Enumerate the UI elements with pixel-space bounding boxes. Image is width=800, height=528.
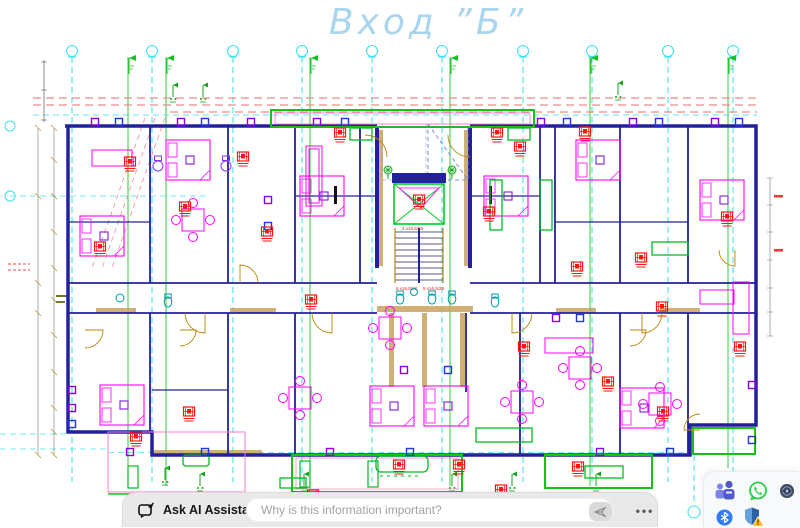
ai-assistant-bar[interactable]: Ask AI Assistant •••	[122, 492, 658, 527]
chat-assistant-icon	[138, 502, 155, 518]
elevator-north-wall	[392, 173, 446, 183]
teams-icon[interactable]	[714, 480, 736, 501]
send-button[interactable]	[589, 502, 612, 521]
more-options-button[interactable]: •••	[631, 493, 659, 528]
screen: 3 x16,5/28 5 x16,5/28 5 x16,5/28	[0, 0, 800, 527]
ai-question-input[interactable]	[246, 498, 613, 522]
floor-plan-drawing: 3 x16,5/28 5 x16,5/28 5 x16,5/28	[0, 0, 800, 527]
ai-assistant-left: Ask AI Assistant	[123, 502, 261, 518]
stair-label-1: 3 x16,5/28	[402, 226, 424, 231]
drawing-title: Вход ”Б”	[318, 2, 538, 48]
canopy-outline	[382, 124, 468, 180]
core: 3 x16,5/28 5 x16,5/28 5 x16,5/28	[384, 166, 456, 291]
send-icon	[594, 506, 607, 518]
bluetooth-icon[interactable]	[716, 509, 733, 526]
grid-lines	[0, 46, 757, 519]
round-app-icon[interactable]	[779, 483, 795, 499]
stair-label-3: 5 x16,5/28	[423, 286, 445, 291]
whatsapp-icon[interactable]	[747, 480, 769, 502]
staircase	[395, 228, 443, 283]
system-tray-panel	[703, 471, 800, 528]
windows-security-icon[interactable]	[742, 506, 765, 528]
